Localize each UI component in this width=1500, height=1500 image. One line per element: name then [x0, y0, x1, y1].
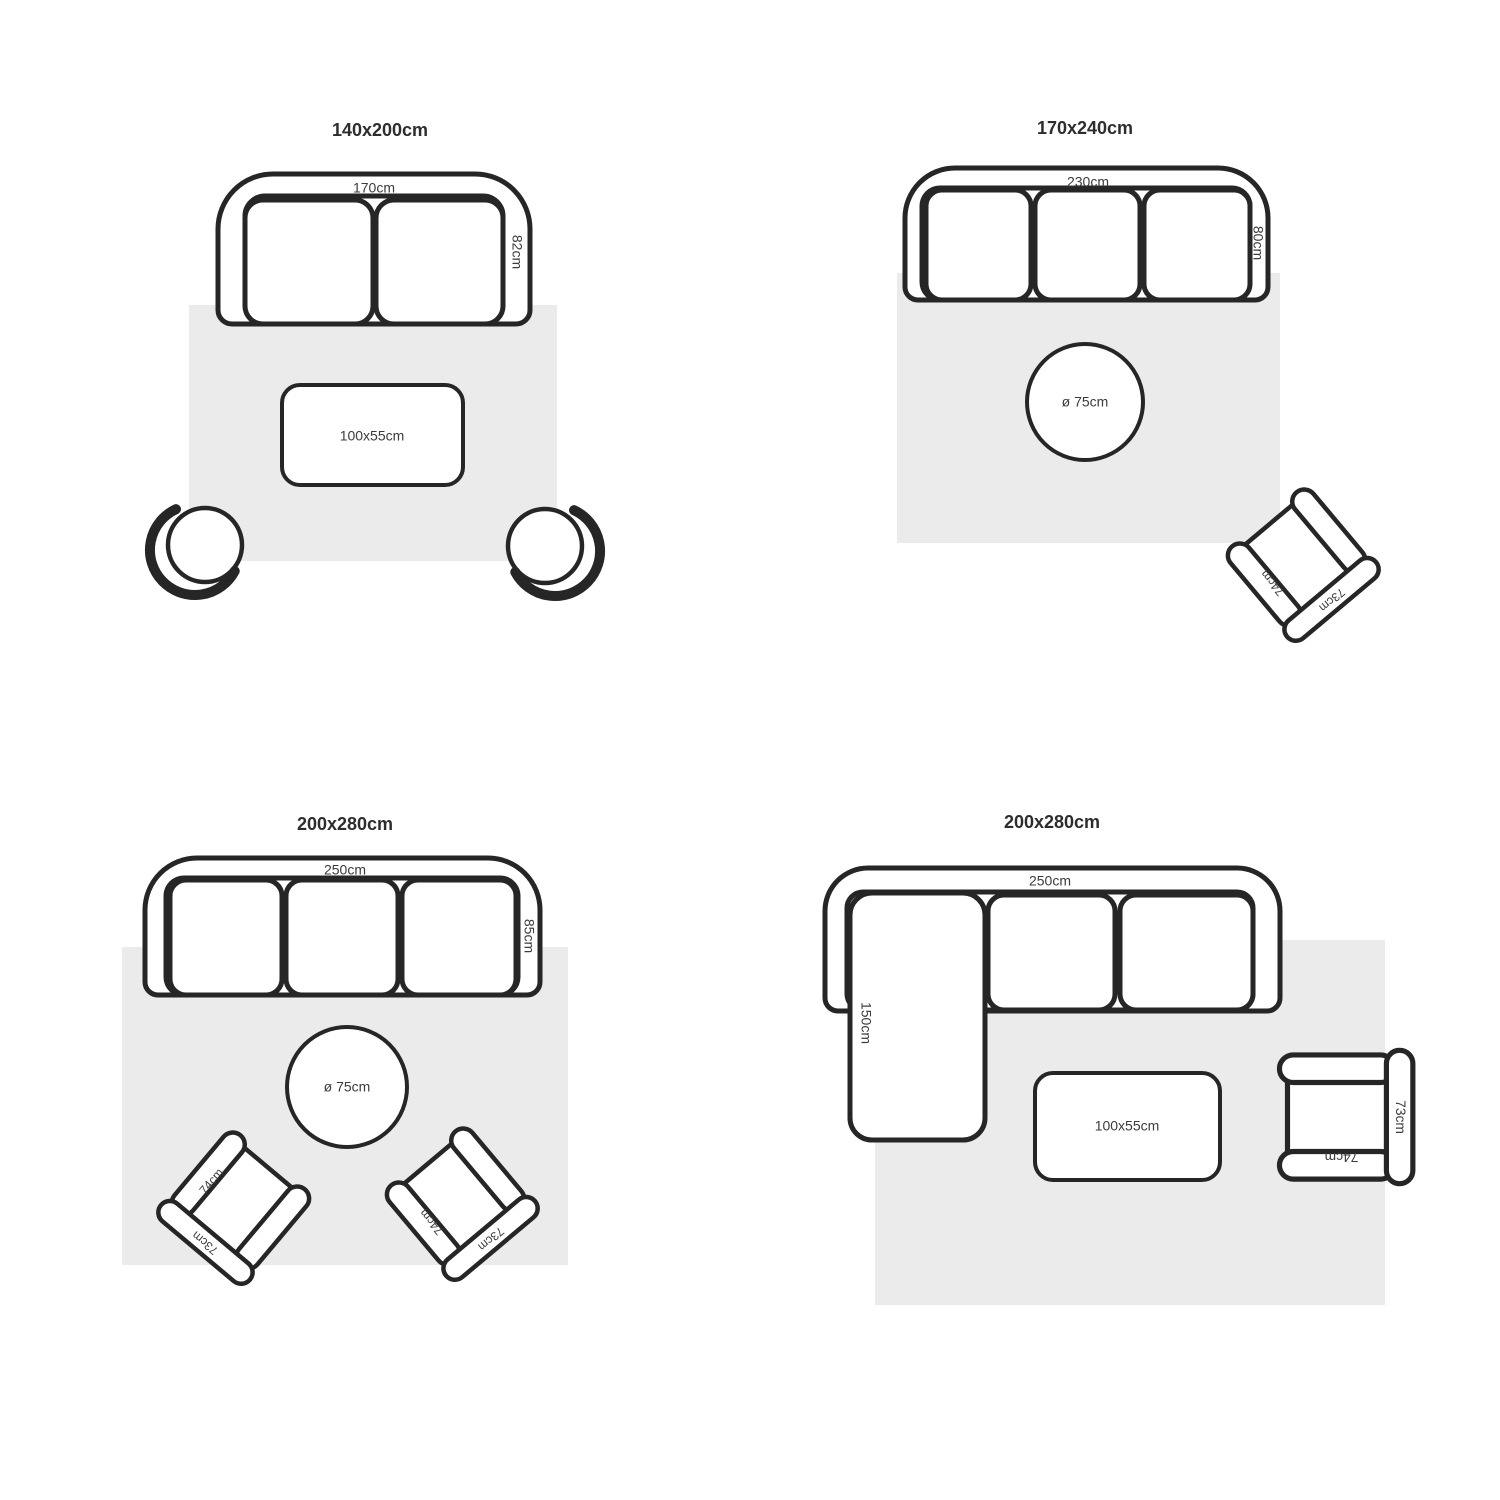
sofa-depth-label: 80cm — [1250, 226, 1266, 260]
coffee-table-label: 100x55cm — [340, 428, 405, 444]
round-table: ø 75cm — [1027, 344, 1143, 460]
sofa-cushion — [286, 880, 398, 995]
sofa-3-seat: 250cm 85cm — [145, 858, 540, 995]
sofa-cushion — [1144, 190, 1250, 300]
round-table-label: ø 75cm — [324, 1079, 371, 1095]
sofa-width-label: 250cm — [1029, 873, 1071, 889]
panel-170x240: 170x240cm 230cm 80cm ø 75cm — [750, 0, 1500, 750]
sofa-cushion — [402, 880, 516, 995]
sofa-3-seat: 230cm 80cm — [905, 168, 1268, 300]
armchair — [1279, 1050, 1412, 1183]
coffee-table: 100x55cm — [1035, 1073, 1220, 1180]
sofa-width-label: 230cm — [1067, 174, 1109, 190]
round-table-label: ø 75cm — [1062, 394, 1109, 410]
panel-140x200: 140x200cm 170cm 82cm 100x55cm — [0, 0, 750, 750]
pouf-right — [508, 509, 600, 596]
panel-title: 200x280cm — [1004, 812, 1100, 832]
sofa-cushion — [376, 200, 503, 324]
sofa-width-label: 170cm — [353, 180, 395, 196]
sofa-cushion — [926, 190, 1031, 300]
sofa-depth-label: 85cm — [521, 919, 537, 953]
panel-title: 200x280cm — [297, 814, 393, 834]
sofa-2-seat: 170cm 82cm — [218, 174, 530, 324]
panel-title: 170x240cm — [1037, 118, 1133, 138]
sofa-width-label: 250cm — [324, 862, 366, 878]
sofa-cushion — [170, 880, 282, 995]
sofa-cushion — [1035, 190, 1140, 300]
chaise-length-label: 150cm — [858, 1002, 874, 1044]
panel-200x280-b: 200x280cm 250cm 150cm 100x55cm — [750, 750, 1500, 1500]
sofa-cushion — [245, 200, 373, 324]
rug-size-guide: 74cm 73cm 140x200cm 170cm 82cm 100x55cm … — [0, 0, 1500, 1500]
sofa-cushion — [1120, 895, 1253, 1010]
coffee-table-label: 100x55cm — [1095, 1118, 1160, 1134]
sofa-depth-label: 82cm — [509, 235, 525, 269]
panel-200x280-a: 200x280cm 250cm 85cm ø 75cm — [0, 750, 750, 1500]
coffee-table: 100x55cm — [282, 385, 463, 485]
round-table: ø 75cm — [287, 1027, 407, 1147]
sofa-cushion — [988, 895, 1115, 1010]
panel-title: 140x200cm — [332, 120, 428, 140]
pouf-left — [150, 508, 242, 595]
